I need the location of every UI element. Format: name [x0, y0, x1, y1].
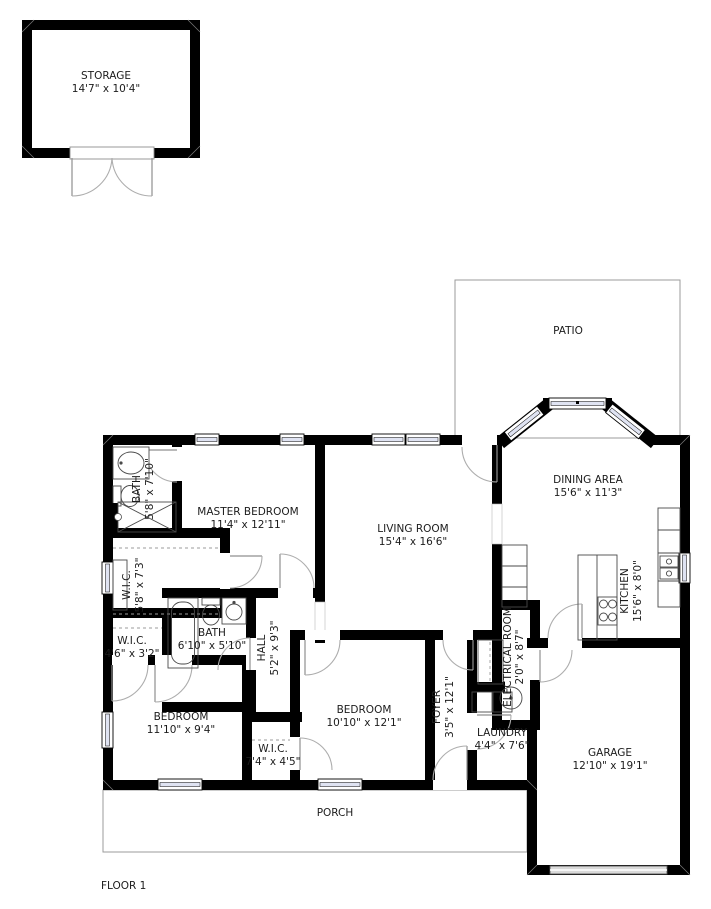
toilet-tank	[202, 598, 220, 605]
room-label-small-wic: W.I.C.	[117, 635, 147, 647]
room-label-master-wic: W.I.C.	[121, 570, 133, 600]
room-label-electrical: ELECTRICAL ROOM	[502, 607, 514, 707]
window	[195, 434, 219, 445]
room-dims-wic-bedroom: 7'4" x 4'5"	[245, 756, 300, 768]
room-dims-hall: 5'2" x 9'3"	[269, 620, 281, 675]
room-label-hall: HALL	[256, 634, 268, 661]
floor-title: FLOOR 1	[101, 880, 146, 892]
room-dims-dining: 15'6" x 11'3"	[554, 487, 622, 499]
front-door	[433, 746, 467, 780]
room-dims-hall-bath: 6'10" x 5'10"	[178, 640, 246, 652]
kitchen-island	[578, 555, 617, 640]
porch-outline	[103, 790, 527, 852]
room-dims-garage: 12'10" x 19'1"	[572, 760, 647, 772]
room-label-kitchen: KITCHEN	[619, 568, 631, 614]
room-label-dining: DINING AREA	[553, 474, 624, 486]
room-label-master-bath: BATH	[131, 475, 143, 503]
room-label-hall-bath: BATH	[198, 627, 226, 639]
window	[406, 434, 440, 445]
window	[679, 553, 690, 583]
room-dims-foyer: 3'5" x 12'1"	[444, 676, 456, 738]
room-dims-master-wic: 5'8" x 7'3"	[134, 557, 146, 612]
kitchen-cabinet	[502, 545, 527, 607]
room-dims-small-wic: 4'6" x 3'2"	[104, 648, 159, 660]
room-label-bedroom-mid: BEDROOM	[337, 704, 392, 716]
room-label-master-bedroom: MASTER BEDROOM	[197, 506, 298, 518]
window	[318, 779, 362, 790]
shower-drain	[115, 514, 122, 521]
bay-window-right	[606, 404, 646, 439]
master-bedroom-door	[280, 554, 314, 588]
room-dims-bedroom-left: 11'10" x 9'4"	[147, 724, 215, 736]
patio-door	[462, 445, 497, 482]
storage-door-threshold	[70, 147, 154, 159]
kitchen-counter	[658, 508, 680, 607]
room-dims-storage: 14'7" x 10'4"	[72, 83, 140, 95]
kitchen-fixtures	[502, 508, 680, 640]
window	[158, 779, 202, 790]
room-label-foyer: FOYER	[431, 690, 443, 724]
floor-plan-canvas: STORAGE 14'7" x 10'4" PATIO DINING AREA …	[0, 0, 711, 909]
wic-bedroom-door	[300, 738, 332, 770]
window	[102, 562, 113, 594]
room-dims-kitchen: 15'6" x 8'0"	[632, 560, 644, 622]
room-dims-laundry: 4'4" x 7'6"	[474, 740, 529, 752]
master-wic-door	[230, 556, 262, 588]
room-label-storage: STORAGE	[81, 70, 131, 82]
room-label-patio: PATIO	[553, 325, 583, 337]
patio-outline	[455, 280, 680, 438]
room-dims-living: 15'4" x 16'6"	[379, 536, 447, 548]
window	[280, 434, 304, 445]
room-label-living: LIVING ROOM	[377, 523, 448, 535]
room-dims-master-bath: 5'8" x 7'10"	[144, 458, 156, 520]
room-dims-master-bedroom: 11'4" x 12'11"	[210, 519, 285, 531]
floor-plan-page: STORAGE 14'7" x 10'4" PATIO DINING AREA …	[0, 0, 711, 909]
room-label-laundry: LAUNDRY	[477, 727, 528, 739]
window	[372, 434, 405, 445]
electrical-garage-door	[540, 650, 572, 682]
room-label-porch: PORCH	[317, 807, 354, 819]
room-dims-electrical: 2'0" x 8'7"	[514, 629, 526, 684]
storage-double-door	[72, 158, 152, 196]
kitchen-sink	[660, 556, 678, 567]
window	[102, 712, 113, 748]
bedroom-left-door-b	[155, 665, 192, 702]
bedroom-left-door-a	[112, 665, 148, 701]
room-label-wic-bedroom: W.I.C.	[258, 743, 288, 755]
room-dims-bedroom-mid: 10'10" x 12'1"	[326, 717, 401, 729]
kitchen-garage-door	[548, 604, 582, 638]
garage-door	[550, 866, 667, 874]
bay-window-left	[504, 406, 544, 441]
bedroom-mid-door	[305, 640, 340, 675]
room-label-garage: GARAGE	[588, 747, 632, 759]
storage-building	[22, 20, 200, 196]
room-label-bedroom-left: BEDROOM	[154, 711, 209, 723]
